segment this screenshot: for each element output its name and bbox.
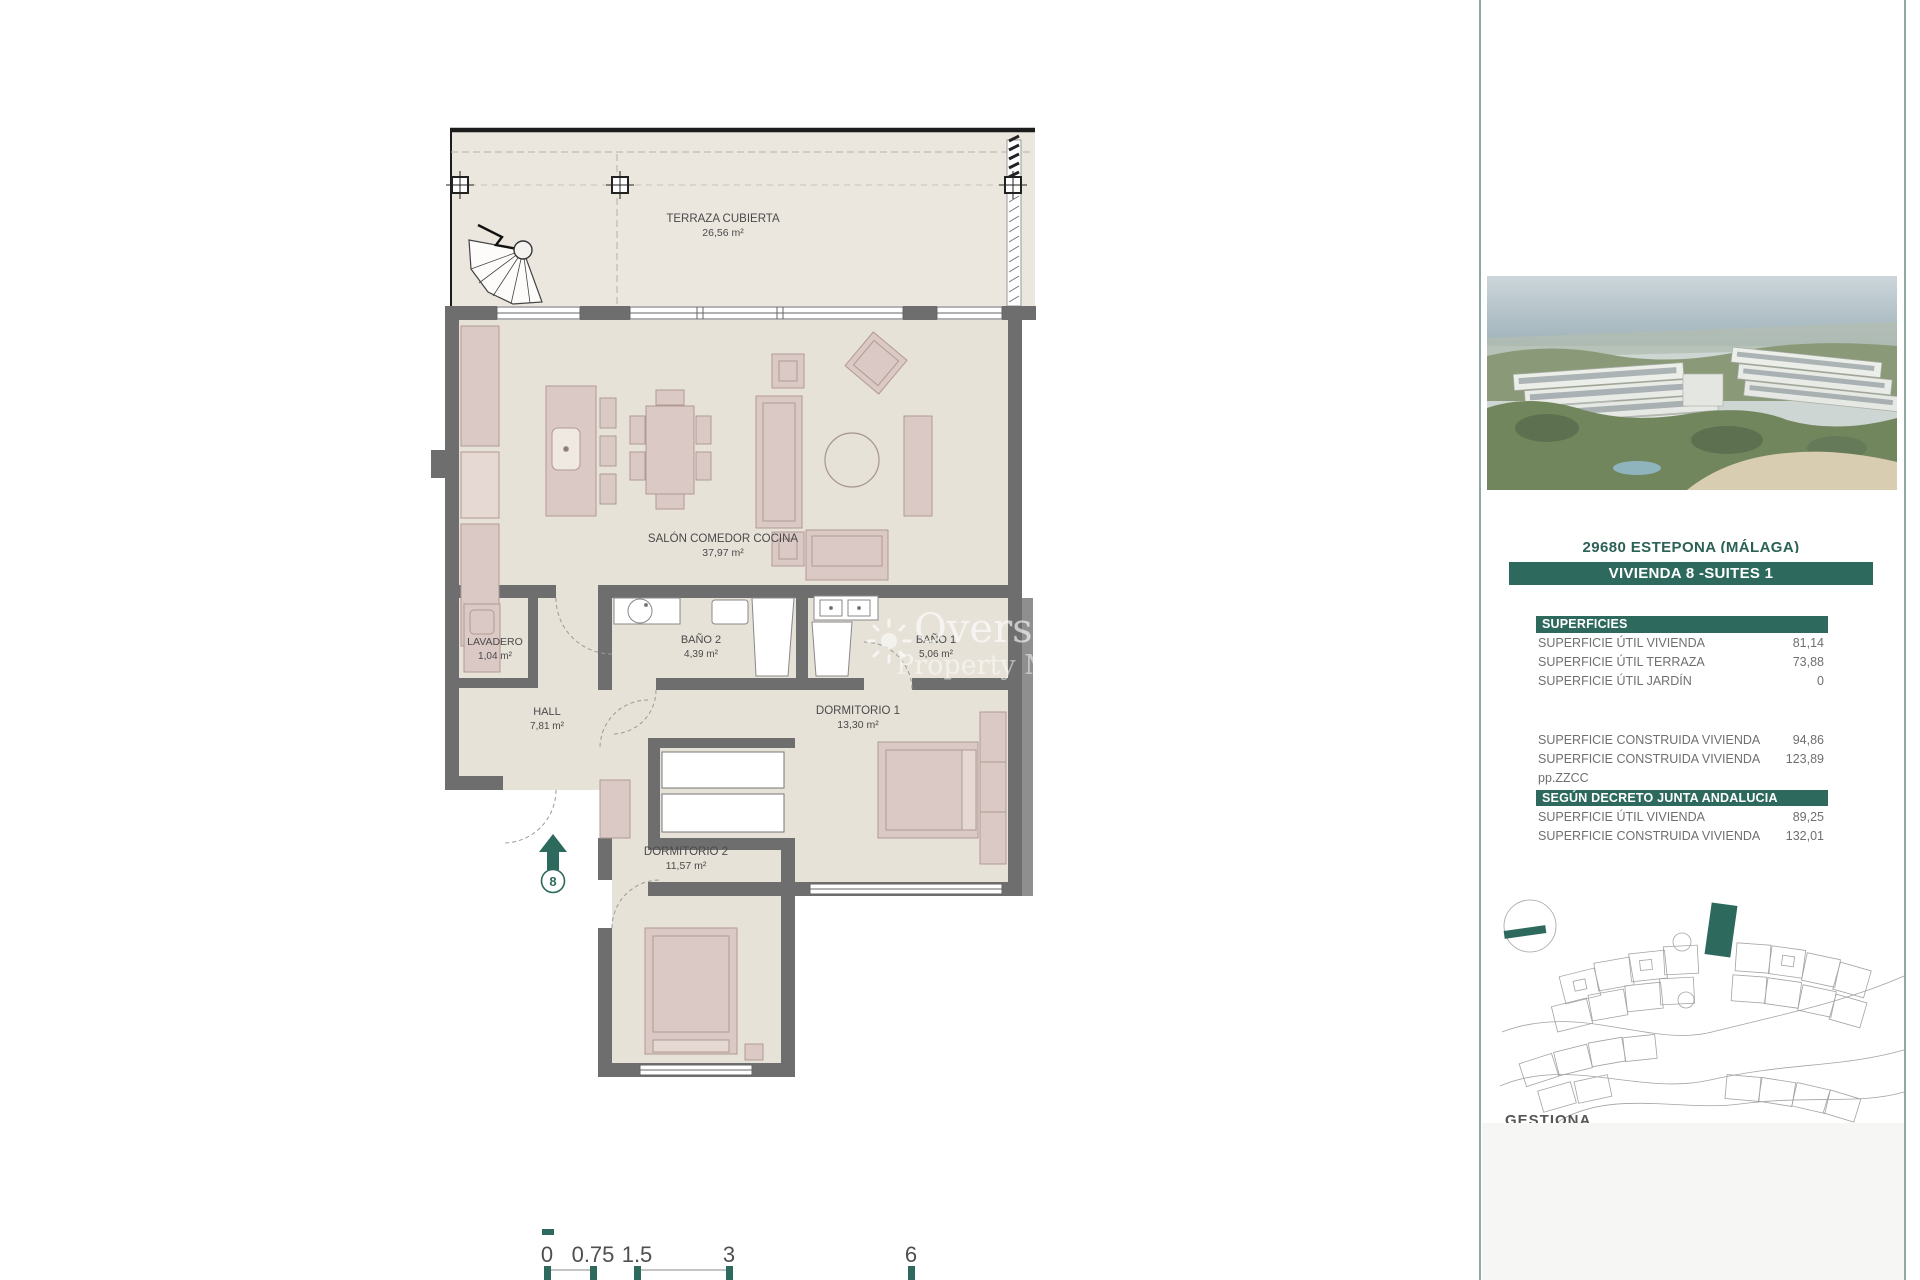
room-label-terraza: TERRAZA CUBIERTA bbox=[666, 213, 780, 225]
room-label-bano1: BAÑO 1 bbox=[916, 633, 956, 646]
entrance-arrow-icon bbox=[539, 834, 567, 870]
table-row: SUPERFICIE CONSTRUIDA VIVIENDA 94,86 bbox=[1536, 731, 1828, 750]
room-area-dormitorio1: 13,30 m² bbox=[837, 719, 879, 731]
development-photo bbox=[1487, 276, 1897, 490]
row-label: SUPERFICIE ÚTIL TERRAZA bbox=[1536, 653, 1705, 672]
table-row: SUPERFICIE ÚTIL VIVIENDA 89,25 bbox=[1536, 808, 1828, 827]
row-value: 89,25 bbox=[1793, 808, 1828, 827]
row-label: SUPERFICIE CONSTRUIDA VIVIENDA bbox=[1536, 827, 1760, 846]
room-area-lavadero: 1,04 m² bbox=[478, 651, 513, 662]
table-row: SUPERFICIE ÚTIL TERRAZA 73,88 bbox=[1536, 653, 1828, 672]
room-label-lavadero: LAVADERO bbox=[467, 636, 523, 648]
row-value: 123,89 bbox=[1786, 750, 1828, 769]
sidebar-left-border bbox=[1479, 0, 1481, 1280]
svg-text:0: 0 bbox=[541, 1242, 553, 1267]
site-plan bbox=[1500, 880, 1905, 1123]
row-value: 0 bbox=[1817, 672, 1828, 691]
brochure-page: TERRAZA CUBIERTA 26,56 m² SALÓN COMEDOR … bbox=[0, 0, 1920, 1280]
row-value: 132,01 bbox=[1786, 827, 1828, 846]
table-row: SUPERFICIE ÚTIL VIVIENDA 81,14 bbox=[1536, 634, 1828, 653]
room-area-hall: 7,81 m² bbox=[530, 721, 565, 732]
table-row: SUPERFICIE ÚTIL JARDÍN 0 bbox=[1536, 672, 1828, 691]
svg-text:0.75: 0.75 bbox=[572, 1242, 615, 1267]
row-value: 94,86 bbox=[1793, 731, 1828, 750]
scale-bar: 0 0.75 1.5 3 6 bbox=[541, 1229, 917, 1280]
room-label-salon: SALÓN COMEDOR COCINA bbox=[648, 532, 798, 545]
row-label: SUPERFICIE ÚTIL VIVIENDA bbox=[1536, 808, 1705, 827]
svg-text:6: 6 bbox=[905, 1242, 917, 1267]
compass-icon bbox=[1504, 900, 1556, 952]
highlighted-unit bbox=[1705, 902, 1738, 957]
louver-strip bbox=[1007, 136, 1021, 306]
room-label-bano2: BAÑO 2 bbox=[681, 633, 721, 646]
row-value: 73,88 bbox=[1793, 653, 1828, 672]
table-row: SUPERFICIE CONSTRUIDA VIVIENDA pp.ZZCC 1… bbox=[1536, 750, 1828, 769]
entrance-number: 8 bbox=[549, 874, 556, 889]
entrance-marker: 8 bbox=[539, 834, 567, 893]
svg-text:3: 3 bbox=[723, 1242, 735, 1267]
row-label: SUPERFICIE ÚTIL VIVIENDA bbox=[1536, 634, 1705, 653]
room-area-dormitorio2: 11,57 m² bbox=[666, 860, 707, 872]
room-area-salon: 37,97 m² bbox=[702, 547, 744, 559]
sidebar-footer-area bbox=[1482, 1123, 1904, 1280]
room-area-bano1: 5,06 m² bbox=[919, 649, 954, 660]
table-row: SUPERFICIE CONSTRUIDA VIVIENDA 132,01 bbox=[1536, 827, 1828, 846]
room-label-dormitorio2: DORMITORIO 2 bbox=[644, 846, 728, 858]
row-value: 81,14 bbox=[1793, 634, 1828, 653]
room-label-dormitorio1: DORMITORIO 1 bbox=[816, 705, 900, 717]
location-line: 29680 ESTEPONA (MÁLAGA) bbox=[1509, 539, 1873, 553]
unit-title-bar: VIVIENDA 8 -SUITES 1 bbox=[1509, 562, 1873, 585]
svg-text:1.5: 1.5 bbox=[622, 1242, 653, 1267]
superficies-header: SUPERFICIES bbox=[1536, 616, 1828, 633]
floor-plan: TERRAZA CUBIERTA 26,56 m² SALÓN COMEDOR … bbox=[0, 0, 1477, 1280]
row-label: SUPERFICIE ÚTIL JARDÍN bbox=[1536, 672, 1692, 691]
sidebar-footer-text: GESTIONA bbox=[1505, 1112, 1725, 1123]
room-area-terraza: 26,56 m² bbox=[702, 227, 744, 239]
row-label: SUPERFICIE CONSTRUIDA VIVIENDA pp.ZZCC bbox=[1536, 750, 1786, 769]
decreto-header: SEGÚN DECRETO JUNTA ANDALUCIA bbox=[1536, 790, 1828, 806]
room-label-hall: HALL bbox=[533, 706, 561, 718]
room-area-bano2: 4,39 m² bbox=[684, 649, 719, 660]
row-label: SUPERFICIE CONSTRUIDA VIVIENDA bbox=[1536, 731, 1760, 750]
